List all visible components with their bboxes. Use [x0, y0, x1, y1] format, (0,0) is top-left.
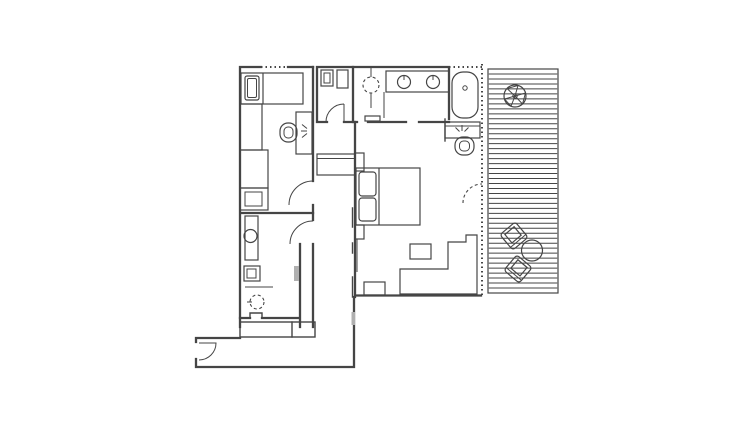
desk — [296, 112, 312, 154]
wall-lamp-icon — [301, 125, 307, 138]
wall-tab-2 — [352, 312, 356, 325]
room-lower-bathroom — [244, 216, 273, 309]
round-sink — [244, 230, 257, 243]
door-arc-small-bedroom — [289, 181, 313, 205]
door-arc-entry — [199, 343, 216, 360]
door-arc-lower-bathroom — [290, 221, 313, 244]
threshold — [365, 116, 380, 121]
desk-chair — [280, 123, 297, 142]
floor-plan-page — [0, 0, 754, 435]
bathtub — [452, 72, 478, 118]
pillow-left — [359, 172, 376, 196]
hall-closet — [317, 154, 355, 175]
lower-wall-band — [240, 322, 315, 337]
washer — [244, 266, 260, 281]
cabinet — [240, 188, 268, 210]
wardrobe — [240, 104, 262, 150]
wardrobe-2 — [240, 150, 268, 188]
bath-counter — [245, 216, 258, 260]
side-table — [410, 244, 431, 259]
room-master-bedroom — [317, 122, 480, 295]
walls — [196, 64, 482, 367]
deck-chair-2 — [504, 255, 532, 283]
deck-chair-1 — [500, 222, 528, 250]
ceiling-light-dashed-2 — [250, 295, 264, 309]
desk-chair-2 — [455, 137, 474, 155]
bed-niche-column-bottom — [355, 225, 364, 239]
ceiling-light-dashed — [363, 77, 379, 93]
floor-plan — [0, 0, 754, 435]
single-bed — [241, 73, 303, 104]
room-wc — [321, 70, 348, 88]
threshold-notch — [250, 313, 262, 318]
room-small-bedroom — [240, 73, 312, 210]
door-arc-wc — [326, 104, 344, 122]
washbasin — [337, 70, 348, 88]
pillow-right — [359, 198, 376, 221]
tub-drain — [463, 86, 467, 90]
room-bathroom — [363, 68, 478, 121]
toilet — [321, 70, 333, 86]
wall-tab — [294, 266, 299, 281]
room-deck — [488, 69, 558, 293]
door-arc-deck-dashed — [463, 184, 482, 203]
bench — [364, 282, 385, 295]
